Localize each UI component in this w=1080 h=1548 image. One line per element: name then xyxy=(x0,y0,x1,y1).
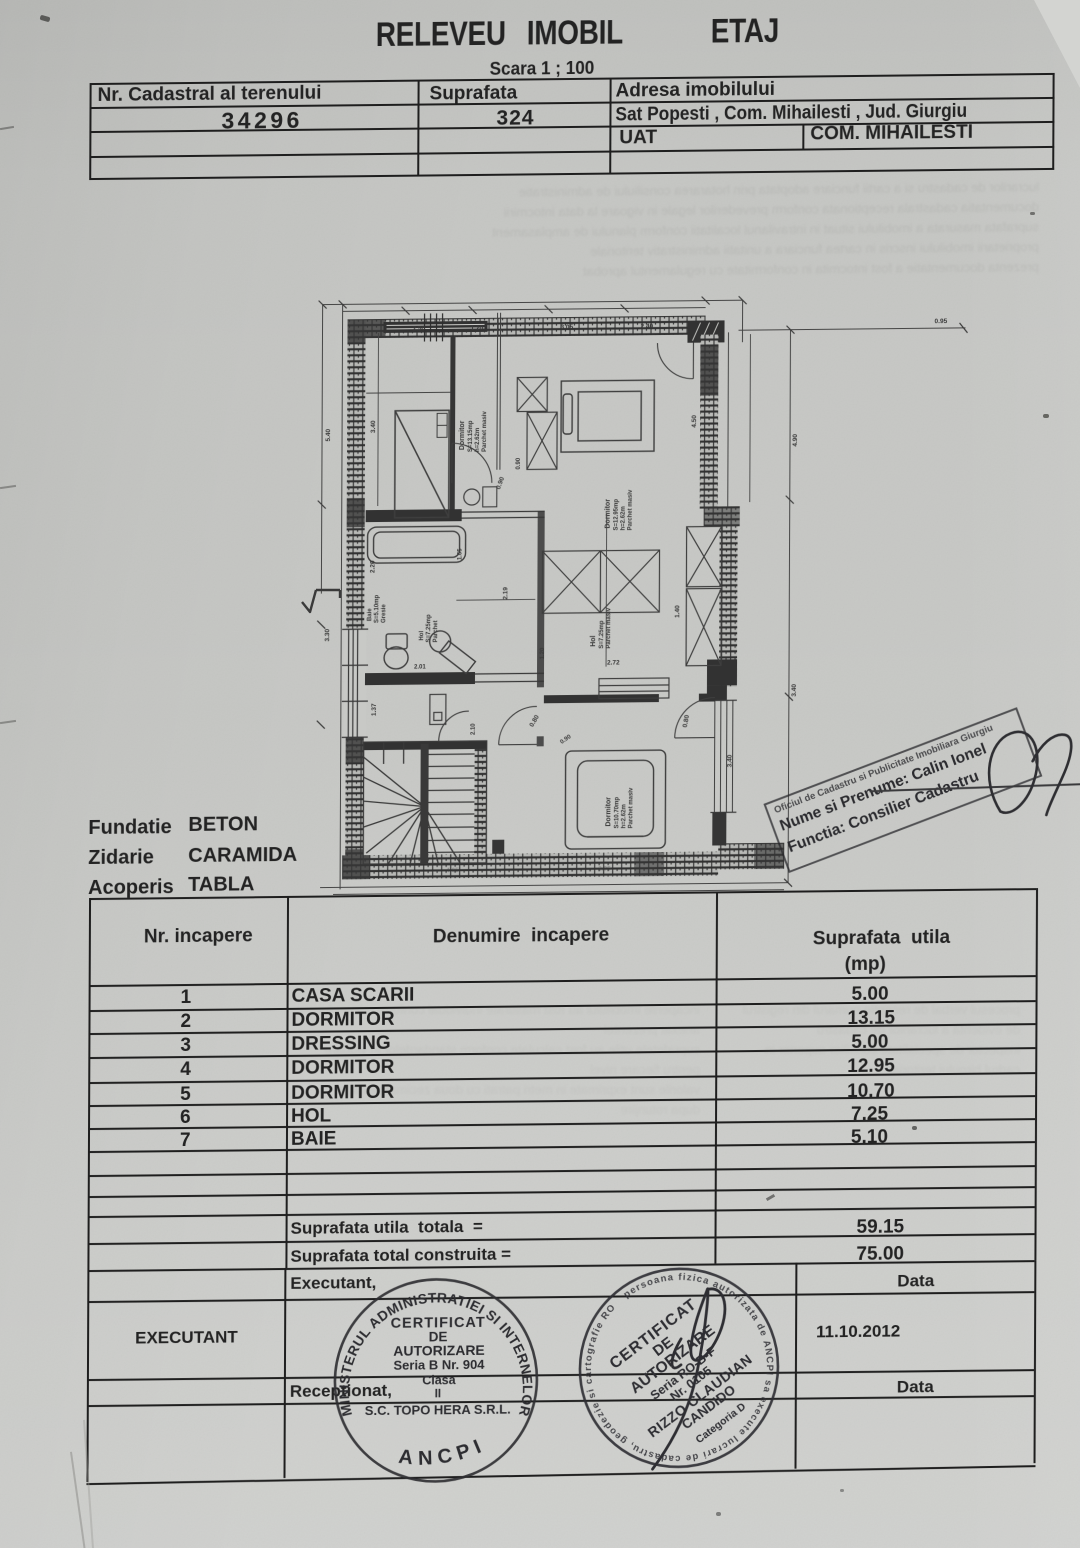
svg-text:2.01: 2.01 xyxy=(414,665,426,671)
svg-text:Dormitor: Dormitor xyxy=(605,499,612,529)
svg-text:1.20: 1.20 xyxy=(471,325,484,332)
svg-text:Seria B Nr. 904: Seria B Nr. 904 xyxy=(393,1357,485,1373)
svg-text:0.90: 0.90 xyxy=(516,457,522,469)
svg-text:Parchet masiv: Parchet masiv xyxy=(628,489,634,530)
svg-text:ANCPI: ANCPI xyxy=(397,1434,490,1471)
svg-text:2.40: 2.40 xyxy=(641,323,654,330)
svg-text:3.05: 3.05 xyxy=(561,324,574,331)
svg-text:h=2.62m: h=2.62m xyxy=(475,428,481,452)
svg-text:Clasa: Clasa xyxy=(422,1373,456,1387)
svg-text:5.40: 5.40 xyxy=(325,428,332,441)
svg-text:4.05: 4.05 xyxy=(446,867,459,874)
svg-text:0.95: 0.95 xyxy=(935,318,948,325)
svg-text:4.50: 4.50 xyxy=(691,415,698,428)
svg-text:0.80: 0.80 xyxy=(682,714,691,728)
svg-text:4.90: 4.90 xyxy=(792,434,799,447)
svg-text:Dormitor: Dormitor xyxy=(605,797,612,827)
svg-text:3.40: 3.40 xyxy=(370,420,377,433)
svg-text:2.72: 2.72 xyxy=(607,659,620,666)
svg-text:3.30: 3.30 xyxy=(324,628,331,641)
svg-text:S=10.70mp: S=10.70mp xyxy=(614,797,620,829)
svg-text:S=7.25mp: S=7.25mp xyxy=(426,614,432,643)
svg-text:Hol: Hol xyxy=(419,631,425,641)
svg-text:2.95: 2.95 xyxy=(578,896,591,898)
svg-text:h=2.62m: h=2.62m xyxy=(621,506,627,530)
svg-text:S.C. TOPO HERA S.R.L.: S.C. TOPO HERA S.R.L. xyxy=(365,1402,511,1419)
svg-text:3.40: 3.40 xyxy=(727,754,734,767)
svg-text:II: II xyxy=(435,1388,441,1400)
svg-text:Parchet: Parchet xyxy=(433,620,439,642)
svg-text:Parchet masiv: Parchet masiv xyxy=(606,607,612,648)
svg-text:Hol: Hol xyxy=(590,635,597,646)
svg-text:S=7.25mp: S=7.25mp xyxy=(599,620,605,649)
svg-text:S=12.95mp: S=12.95mp xyxy=(614,499,620,531)
svg-text:Gresie: Gresie xyxy=(381,604,387,623)
svg-text:Parchet masiv: Parchet masiv xyxy=(628,787,634,828)
svg-text:S=5.10mp: S=5.10mp xyxy=(374,594,380,623)
svg-text:2.95: 2.95 xyxy=(598,866,611,873)
svg-text:1.20: 1.20 xyxy=(540,647,546,659)
svg-text:0.80: 0.80 xyxy=(528,714,541,729)
svg-text:2.50: 2.50 xyxy=(413,326,426,333)
svg-text:Parchet masiv: Parchet masiv xyxy=(482,411,488,452)
svg-text:1.65: 1.65 xyxy=(458,548,464,560)
svg-text:1.37: 1.37 xyxy=(371,703,378,716)
svg-text:h=2.62m: h=2.62m xyxy=(621,804,627,828)
svg-text:2.10: 2.10 xyxy=(471,723,477,735)
svg-text:S=13.15mp: S=13.15mp xyxy=(468,420,474,452)
svg-text:3.40: 3.40 xyxy=(791,684,798,697)
svg-text:2.20: 2.20 xyxy=(369,560,376,573)
svg-text:2.19: 2.19 xyxy=(502,587,509,600)
svg-text:1.40: 1.40 xyxy=(674,605,681,618)
svg-text:Baie: Baie xyxy=(367,608,373,621)
svg-text:0.90: 0.90 xyxy=(559,734,573,746)
svg-text:Dormitor: Dormitor xyxy=(459,420,466,450)
